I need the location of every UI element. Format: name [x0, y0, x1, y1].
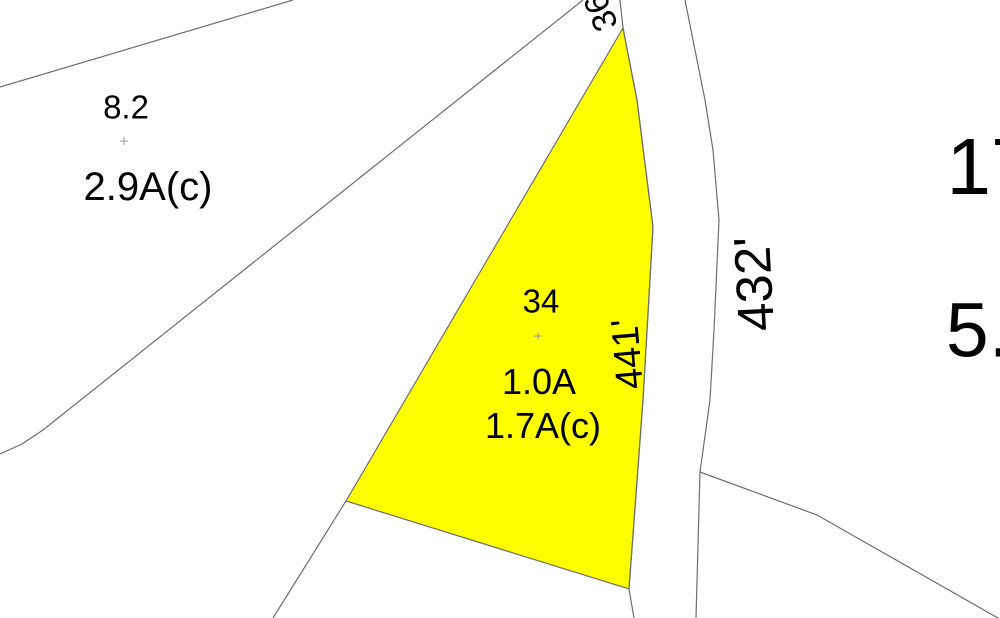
- highlighted-parcel-34[interactable]: [346, 28, 653, 589]
- boundary-line-road-right-edge: [685, 0, 719, 618]
- boundary-line-southeast-branch: [700, 472, 1000, 618]
- point-marker-icon: [120, 137, 128, 145]
- parcel-map-view[interactable]: 8.22.9A(c)341.0A1.7A(c)441'432'36'175.: [0, 0, 1000, 618]
- parcel-map-canvas[interactable]: [0, 0, 1000, 618]
- boundary-line-southwest-tail: [273, 501, 346, 618]
- boundary-line-apex-stub: [620, 0, 623, 28]
- boundary-line-northwest-diagonal: [0, 0, 293, 87]
